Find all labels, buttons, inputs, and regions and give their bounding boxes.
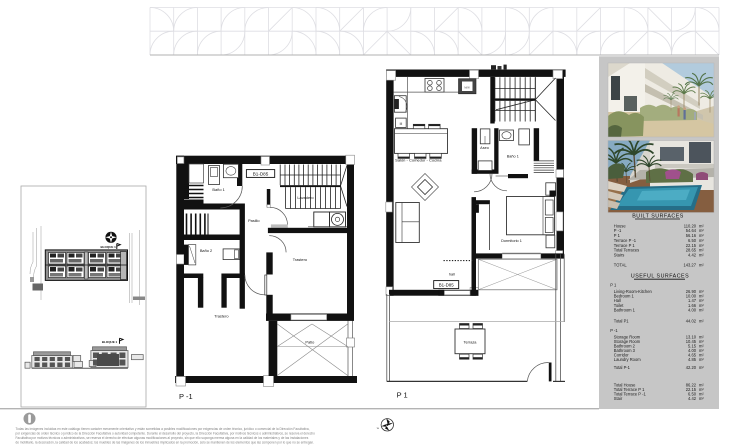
svg-text:44.02: 44.02: [686, 318, 697, 323]
svg-text:Facultativa por motivos técnic: Facultativa por motivos técnicos o admin…: [16, 436, 309, 440]
svg-text:M/W: M/W: [464, 85, 470, 89]
svg-text:4.00: 4.00: [688, 307, 697, 312]
svg-text:Stair: Stair: [614, 396, 623, 401]
svg-text:P 1: P 1: [610, 283, 617, 288]
svg-text:Dormitorio 1: Dormitorio 1: [501, 239, 522, 243]
svg-text:m²: m²: [699, 307, 704, 312]
svg-text:Todas las imágenes incluidas e: Todas las imágenes incluidas en este cat…: [16, 427, 310, 431]
svg-text:Salón - Comedor - Cocina: Salón - Comedor - Cocina: [395, 157, 442, 162]
svg-text:4.42: 4.42: [688, 396, 697, 401]
svg-text:Baño 2: Baño 2: [200, 248, 212, 253]
svg-text:por exigencias de orden técnic: por exigencias de orden técnico o jurídi…: [16, 431, 316, 435]
svg-text:m²: m²: [699, 365, 704, 370]
svg-text:Baño 1: Baño 1: [507, 155, 519, 159]
svg-text:42.20: 42.20: [686, 365, 697, 370]
svg-text:BLOQUE 1: BLOQUE 1: [101, 245, 117, 249]
svg-text:M: M: [400, 122, 403, 126]
svg-text:Total P-1: Total P-1: [614, 365, 631, 370]
svg-text:Total P1: Total P1: [614, 318, 630, 323]
svg-text:Trastero: Trastero: [214, 314, 228, 319]
svg-text:Stairs: Stairs: [614, 253, 624, 258]
svg-text:Patio: Patio: [305, 339, 314, 344]
svg-text:4.42: 4.42: [688, 253, 697, 258]
svg-text:m²: m²: [699, 396, 704, 401]
svg-text:de mobiliario, la decoración,: de mobiliario, la decoración, la calidad…: [16, 440, 315, 444]
svg-text:P -1: P -1: [179, 392, 193, 401]
svg-text:hall: hall: [449, 273, 455, 277]
svg-text:m²: m²: [699, 318, 704, 323]
svg-text:Bathroom 1: Bathroom 1: [614, 307, 636, 312]
svg-text:Laundry Room: Laundry Room: [614, 357, 641, 362]
svg-text:m²: m²: [699, 253, 704, 258]
svg-text:4.85: 4.85: [688, 357, 697, 362]
svg-text:Aseo: Aseo: [480, 146, 489, 150]
svg-text:P -1: P -1: [610, 328, 618, 333]
svg-text:Baño 1: Baño 1: [212, 187, 224, 192]
svg-text:B1-D85: B1-D85: [439, 283, 454, 288]
svg-text:m²: m²: [699, 357, 704, 362]
svg-text:USEFUL SURFACES: USEFUL SURFACES: [631, 274, 689, 280]
svg-text:Lavadero: Lavadero: [297, 195, 313, 200]
svg-text:Pasillo: Pasillo: [248, 218, 259, 223]
svg-text:Terraza: Terraza: [464, 340, 478, 345]
svg-text:TOTAL: TOTAL: [614, 263, 628, 268]
svg-text:P 1: P 1: [397, 391, 408, 400]
svg-text:m²: m²: [699, 263, 704, 268]
svg-text:BLOQUE 1: BLOQUE 1: [102, 340, 118, 344]
svg-text:B1-D85: B1-D85: [253, 172, 269, 177]
svg-text:143.27: 143.27: [683, 263, 696, 268]
svg-text:Trastero: Trastero: [293, 257, 307, 262]
svg-text:BUILT SURFACES: BUILT SURFACES: [632, 213, 684, 219]
